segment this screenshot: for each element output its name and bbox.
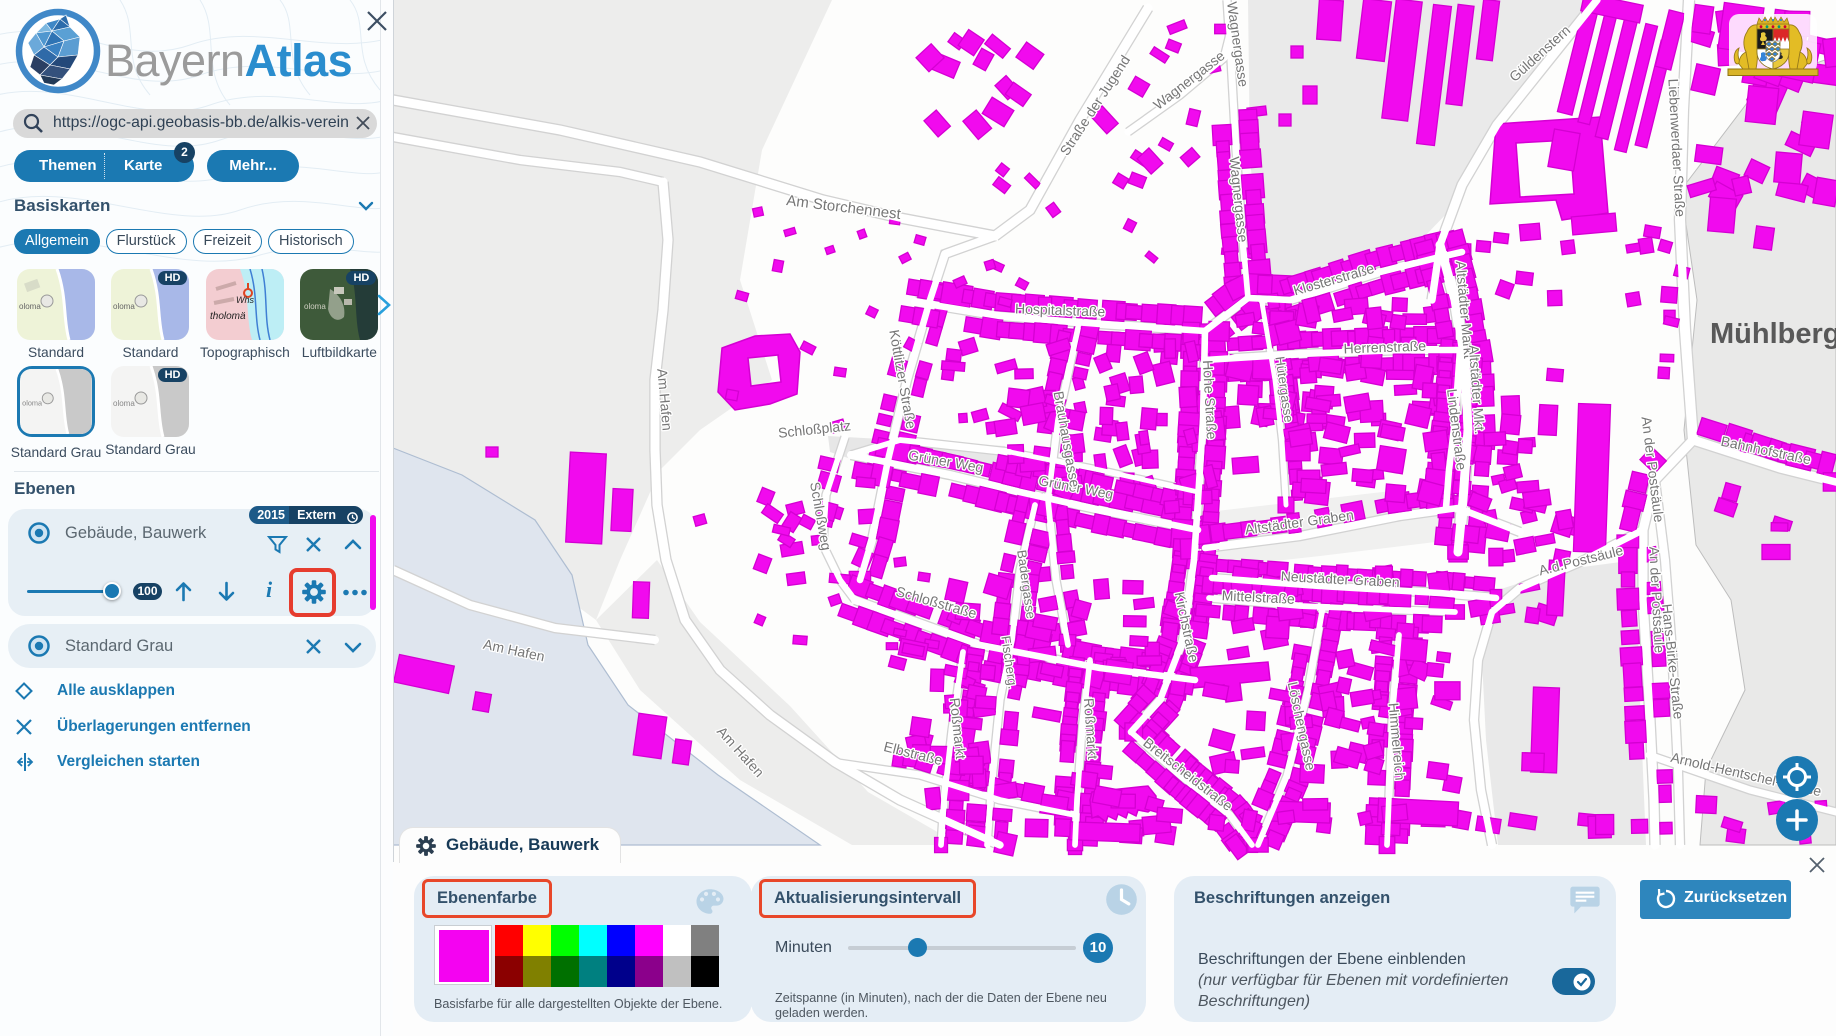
svg-text:Whs: Whs — [236, 295, 255, 305]
svg-text:tholomä: tholomä — [210, 311, 246, 322]
svg-text:Mühlberg: Mühlberg — [1710, 318, 1836, 350]
svg-text:oloma: oloma — [113, 302, 135, 311]
svg-text:oloma: oloma — [22, 399, 43, 408]
svg-text:Hospitalstraße: Hospitalstraße — [1015, 300, 1106, 319]
svg-text:oloma: oloma — [113, 399, 135, 408]
svg-text:oloma: oloma — [304, 302, 326, 311]
svg-text:Herrenstraße: Herrenstraße — [1343, 338, 1426, 357]
svg-text:oloma: oloma — [19, 302, 41, 311]
